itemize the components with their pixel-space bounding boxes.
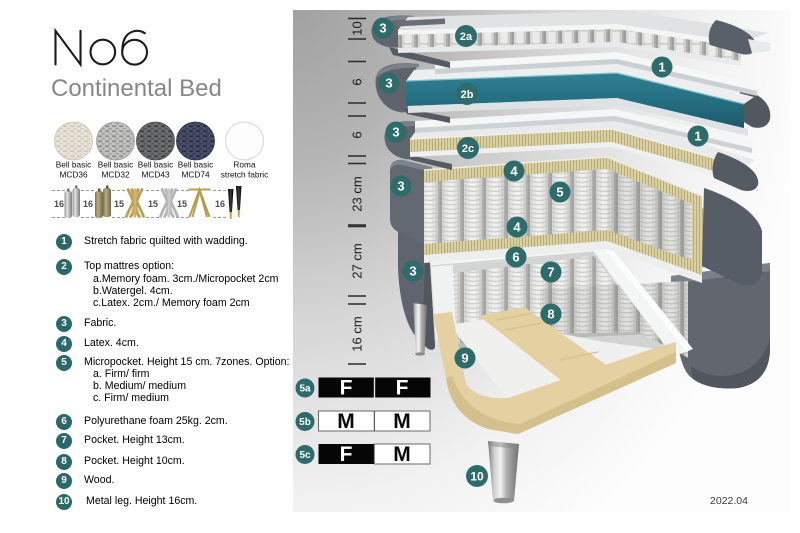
svg-text:4: 4: [513, 220, 521, 235]
svg-text:7: 7: [547, 265, 554, 280]
svg-text:16: 16: [215, 199, 225, 209]
svg-text:5b: 5b: [299, 417, 311, 428]
svg-text:6: 6: [512, 250, 519, 265]
svg-text:M: M: [393, 443, 411, 466]
svg-text:16 cm: 16 cm: [350, 316, 365, 351]
svg-text:M: M: [337, 410, 355, 433]
svg-text:F: F: [340, 377, 353, 400]
svg-text:10: 10: [470, 470, 484, 484]
svg-text:2b: 2b: [461, 89, 474, 101]
svg-text:15: 15: [148, 199, 158, 209]
svg-text:3: 3: [392, 125, 399, 140]
svg-text:M: M: [393, 410, 411, 433]
svg-text:5c: 5c: [299, 450, 311, 461]
svg-text:6: 6: [350, 78, 365, 85]
svg-text:5: 5: [556, 185, 563, 200]
svg-text:4: 4: [510, 164, 518, 179]
svg-text:F: F: [396, 377, 409, 400]
svg-text:6: 6: [350, 131, 365, 138]
svg-text:8: 8: [547, 307, 554, 322]
svg-text:10: 10: [350, 21, 365, 35]
svg-text:3: 3: [409, 264, 416, 279]
svg-text:23 cm: 23 cm: [350, 176, 365, 211]
svg-text:2a: 2a: [460, 31, 473, 43]
svg-text:3: 3: [397, 179, 404, 194]
svg-text:27 cm: 27 cm: [350, 243, 365, 278]
svg-text:3: 3: [385, 76, 392, 91]
svg-text:2c: 2c: [462, 143, 474, 155]
svg-text:2022.04: 2022.04: [710, 495, 748, 507]
svg-text:3: 3: [379, 21, 386, 36]
svg-text:1: 1: [658, 60, 665, 75]
svg-text:15: 15: [177, 199, 187, 209]
svg-text:15: 15: [114, 199, 124, 209]
svg-text:16: 16: [54, 199, 64, 209]
svg-text:F: F: [340, 443, 353, 466]
svg-text:9: 9: [461, 351, 468, 366]
svg-text:1: 1: [694, 129, 701, 144]
svg-text:16: 16: [83, 199, 93, 209]
svg-text:5a: 5a: [299, 384, 311, 395]
